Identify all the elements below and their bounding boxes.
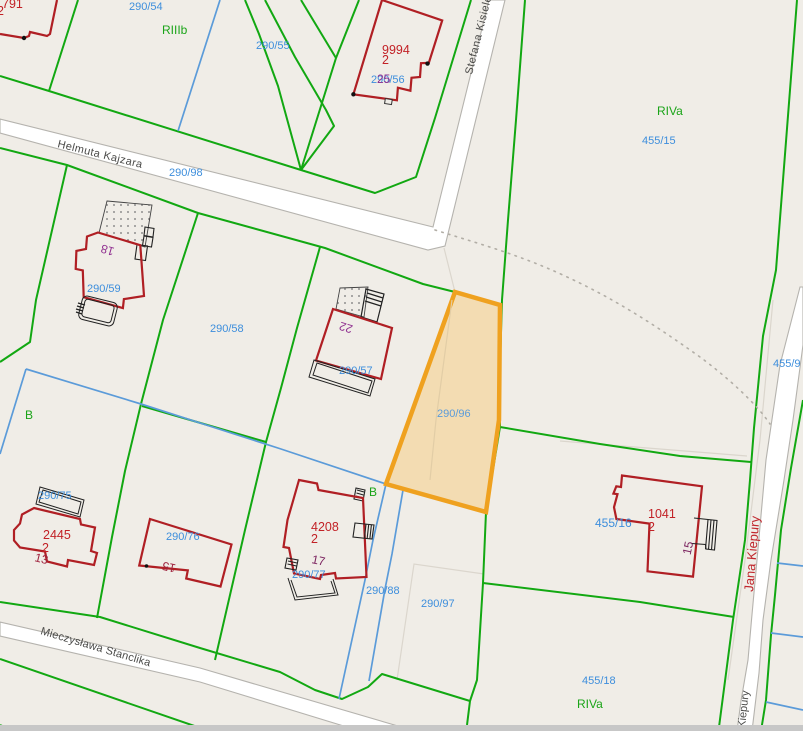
svg-text:RIVa: RIVa xyxy=(577,697,603,711)
svg-text:455/18: 455/18 xyxy=(582,675,616,687)
svg-text:455/16: 455/16 xyxy=(595,516,632,530)
svg-text:455/9: 455/9 xyxy=(773,358,801,370)
svg-text:290/96: 290/96 xyxy=(437,408,471,420)
svg-text:B: B xyxy=(369,485,377,499)
svg-text:1041: 1041 xyxy=(648,507,676,521)
svg-text:2: 2 xyxy=(311,532,318,546)
svg-text:791: 791 xyxy=(2,0,23,11)
svg-text:2: 2 xyxy=(648,520,655,534)
svg-text:455/15: 455/15 xyxy=(642,135,676,147)
svg-text:290/88: 290/88 xyxy=(366,585,400,597)
svg-text:2445: 2445 xyxy=(43,528,71,542)
svg-text:290/55: 290/55 xyxy=(256,40,290,52)
svg-text:RIIIb: RIIIb xyxy=(162,23,188,37)
svg-text:290/76: 290/76 xyxy=(166,531,200,543)
svg-text:290/58: 290/58 xyxy=(210,323,244,335)
svg-text:2: 2 xyxy=(382,53,389,67)
svg-text:RIVa: RIVa xyxy=(657,104,683,118)
svg-text:290/54: 290/54 xyxy=(129,1,163,13)
svg-text:290/75: 290/75 xyxy=(38,490,72,502)
svg-text:290/98: 290/98 xyxy=(169,167,203,179)
svg-text:25: 25 xyxy=(377,72,391,86)
svg-text:290/97: 290/97 xyxy=(421,598,455,610)
svg-text:290/77: 290/77 xyxy=(292,569,326,581)
svg-text:290/59: 290/59 xyxy=(87,283,121,295)
svg-text:2: 2 xyxy=(0,4,4,18)
svg-text:B: B xyxy=(25,408,33,422)
svg-text:290/57: 290/57 xyxy=(339,365,373,377)
